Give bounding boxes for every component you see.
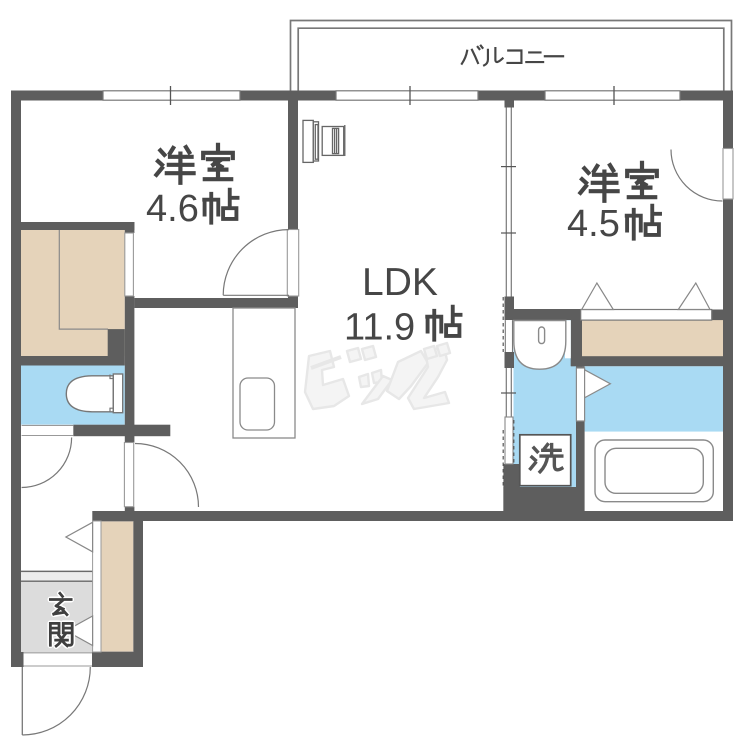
svg-text:11.9: 11.9 (344, 307, 415, 349)
svg-text:LDK: LDK (362, 261, 438, 304)
svg-text:4.5: 4.5 (567, 203, 620, 245)
svg-text:4.6: 4.6 (146, 188, 199, 230)
